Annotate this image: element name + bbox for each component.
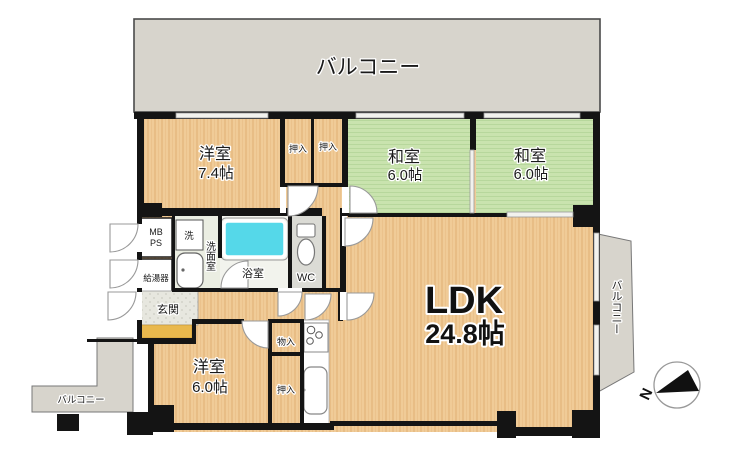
ldk-name: LDK [425,280,504,322]
fusuma-divider [470,150,474,213]
japanese-room-1-name: 和室 [388,148,420,166]
closet-bottom-label: 押入 [277,384,295,395]
wash-basin [177,253,203,288]
floor-plan-page: バルコニー 洋室 7.4帖 押入 押入 和室 6.0帖 和室 6.0帖 MB P… [0,0,740,455]
washroom-label: 洗面室 [204,241,216,271]
western-room-1-name: 洋室 [199,145,231,163]
balcony-door-right-2 [594,325,599,375]
japanese-room-2-name: 和室 [514,147,546,165]
compass-north-label: N [636,386,656,403]
water-heater-label: 給湯器 [143,273,169,283]
entrance-step [140,325,192,338]
window-japanese-room-2 [484,113,580,118]
western-room-1-size: 7.4帖 [198,165,234,182]
toilet-bowl [298,239,315,265]
pipe-space-label: PS [150,238,162,248]
stove [304,323,328,352]
balcony-right-label: バルコニー [610,280,623,335]
window-japanese-room-1 [356,113,464,118]
compass: N [636,362,700,408]
balcony-bottom-left-label: バルコニー [57,395,104,406]
ldk-size: 24.8帖 [425,319,505,349]
bathroom-label: 浴室 [242,266,264,280]
window-western-room-1 [176,113,268,118]
toilet-tank [297,224,315,237]
bathtub [224,221,285,257]
sliding-door-japanese-room-2 [507,212,573,217]
western-room-2-size: 6.0帖 [192,379,228,396]
western-room-2-name: 洋室 [193,358,225,376]
door-entrance [108,292,136,320]
entrance-label: 玄関 [157,302,179,316]
door-water-heater [110,260,138,288]
closet-top-1-label: 押入 [289,143,307,154]
japanese-room-1-size: 6.0帖 [388,167,423,184]
door-meter-box [110,224,138,252]
tatami-floor-japanese-room-2 [476,119,593,213]
closet-top-2-label: 押入 [319,141,337,152]
floor-plan: バルコニー 洋室 7.4帖 押入 押入 和室 6.0帖 和室 6.0帖 MB P… [0,0,740,455]
washer-label: 洗 [184,230,194,242]
balcony-top-label: バルコニー [316,56,421,79]
balcony-door-right-1 [594,233,599,301]
kitchen-sink [304,367,327,414]
japanese-room-2-size: 6.0帖 [514,166,549,183]
wc-label: WC [297,272,315,284]
storage-label: 物入 [277,336,295,347]
wash-basin-tap [181,268,184,271]
meter-box-label: MB [149,227,163,237]
